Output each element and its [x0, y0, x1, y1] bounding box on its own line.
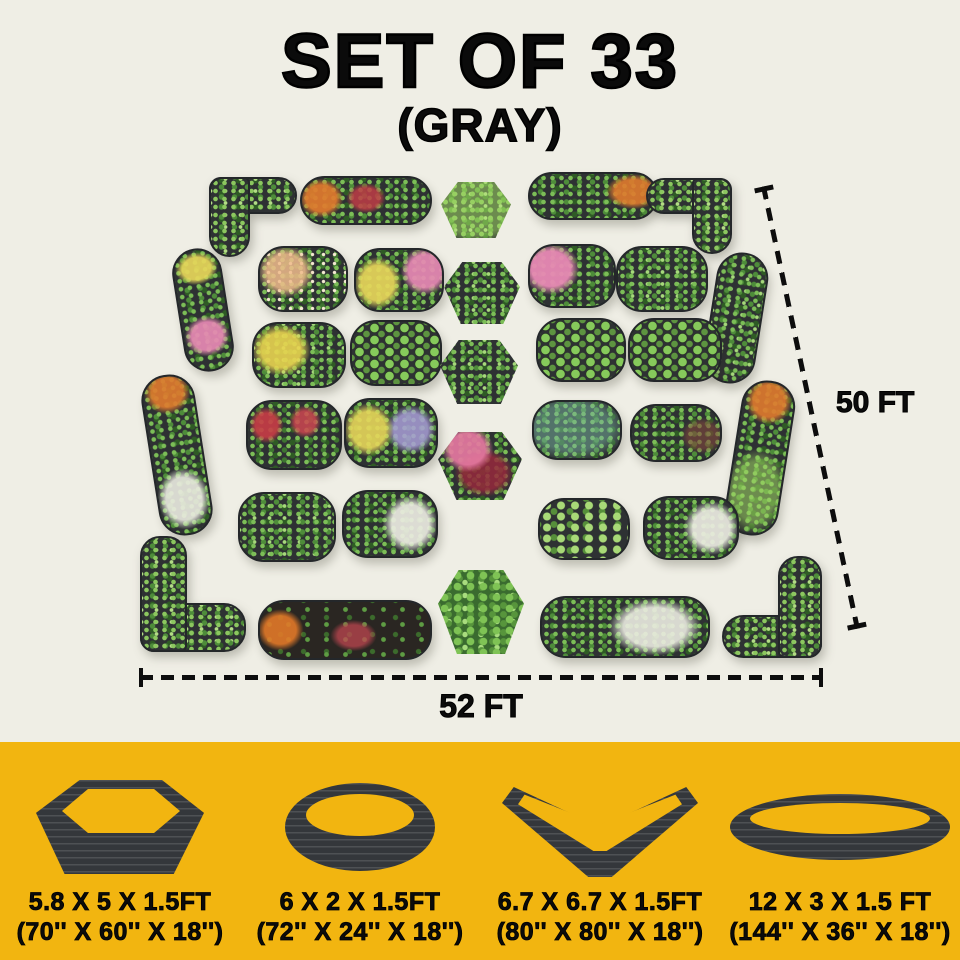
bed-row4-col4 [630, 404, 722, 462]
bed-row4-col2 [344, 398, 438, 468]
bed-row3-col3 [536, 318, 626, 382]
bed-row3-col2 [350, 320, 442, 386]
oval-bed-opening [306, 794, 414, 836]
bed-row2-col2 [354, 248, 444, 312]
bed-corner-top-right [650, 178, 732, 250]
hexagonal-bed-image [36, 766, 204, 888]
bed-size-inches: (80'' X 80'' X 18'') [497, 918, 704, 948]
dimension-end-cap [139, 668, 143, 687]
bed-long-top-left [300, 176, 432, 225]
bed-long-bottom-right [540, 596, 710, 658]
bed-row4-col3 [532, 400, 622, 460]
bed-corner-bottom-right [726, 560, 822, 658]
bed-long-top-right [528, 172, 658, 220]
dimension-end-cap [819, 668, 823, 687]
long-oval-bed-opening [750, 803, 930, 834]
bed-row5-col4 [643, 496, 739, 560]
bed-size-ft: 12 X 3 X 1.5 FT [749, 888, 932, 918]
bed-size-ft: 6.7 X 6.7 X 1.5FT [498, 888, 702, 918]
bed-corner-bottom-left [140, 540, 242, 652]
bed-row3-col4 [628, 318, 722, 382]
long-oval-bed-image [730, 766, 950, 888]
bed-long-bottom-left [258, 600, 432, 660]
bed-size-ft: 5.8 X 5 X 1.5FT [29, 888, 212, 918]
height-dimension-label: 50 FT [836, 386, 914, 420]
corner-arm [209, 177, 250, 257]
bed-hex-bottom [438, 570, 524, 654]
bed-size-inches: (144'' X 36'' X 18'') [729, 918, 950, 948]
corner-arm [778, 556, 822, 658]
corner-arm [140, 536, 187, 652]
bed-row3-col1 [252, 322, 346, 388]
bed-row2-col4 [616, 246, 708, 312]
bed-row5-col2 [342, 490, 438, 558]
bed-hex-4 [438, 432, 522, 500]
width-dimension-line [140, 675, 822, 680]
bed-hex-top [441, 182, 511, 238]
bed-size-inches: (70'' X 60'' X 18'') [17, 918, 224, 948]
bed-row5-col3 [538, 498, 630, 560]
legend-item-oval-bed: 6 X 2 X 1.5FT (72'' X 24'' X 18'') [240, 742, 480, 960]
bed-hex-2 [444, 262, 520, 324]
oval-bed-image [285, 766, 435, 888]
bed-row2-col3 [528, 244, 616, 308]
bed-corner-top-left [209, 177, 293, 253]
bed-hex-3 [440, 340, 518, 404]
bed-row5-col1 [238, 492, 336, 562]
bed-row2-col1 [258, 246, 348, 312]
corner-arm [692, 178, 732, 254]
bed-row4-col1 [246, 400, 342, 470]
product-infographic: { "title": "SET OF 33", "subtitle": "(GR… [0, 0, 960, 960]
legend-item-v-shaped-bed: 6.7 X 6.7 X 1.5FT (80'' X 80'' X 18'') [480, 742, 720, 960]
bed-left-upper [169, 245, 238, 375]
width-dimension-label: 52 FT [140, 688, 822, 725]
legend-bar: 5.8 X 5 X 1.5FT (70'' X 60'' X 18'') 6 X… [0, 742, 960, 960]
legend-item-hexagonal-bed: 5.8 X 5 X 1.5FT (70'' X 60'' X 18'') [0, 742, 240, 960]
v-shaped-bed-image [502, 766, 698, 888]
bed-size-ft: 6 X 2 X 1.5FT [280, 888, 441, 918]
bed-size-inches: (72'' X 24'' X 18'') [257, 918, 464, 948]
bed-left-lower [138, 371, 217, 539]
legend-item-long-oval-bed: 12 X 3 X 1.5 FT (144'' X 36'' X 18'') [720, 742, 960, 960]
